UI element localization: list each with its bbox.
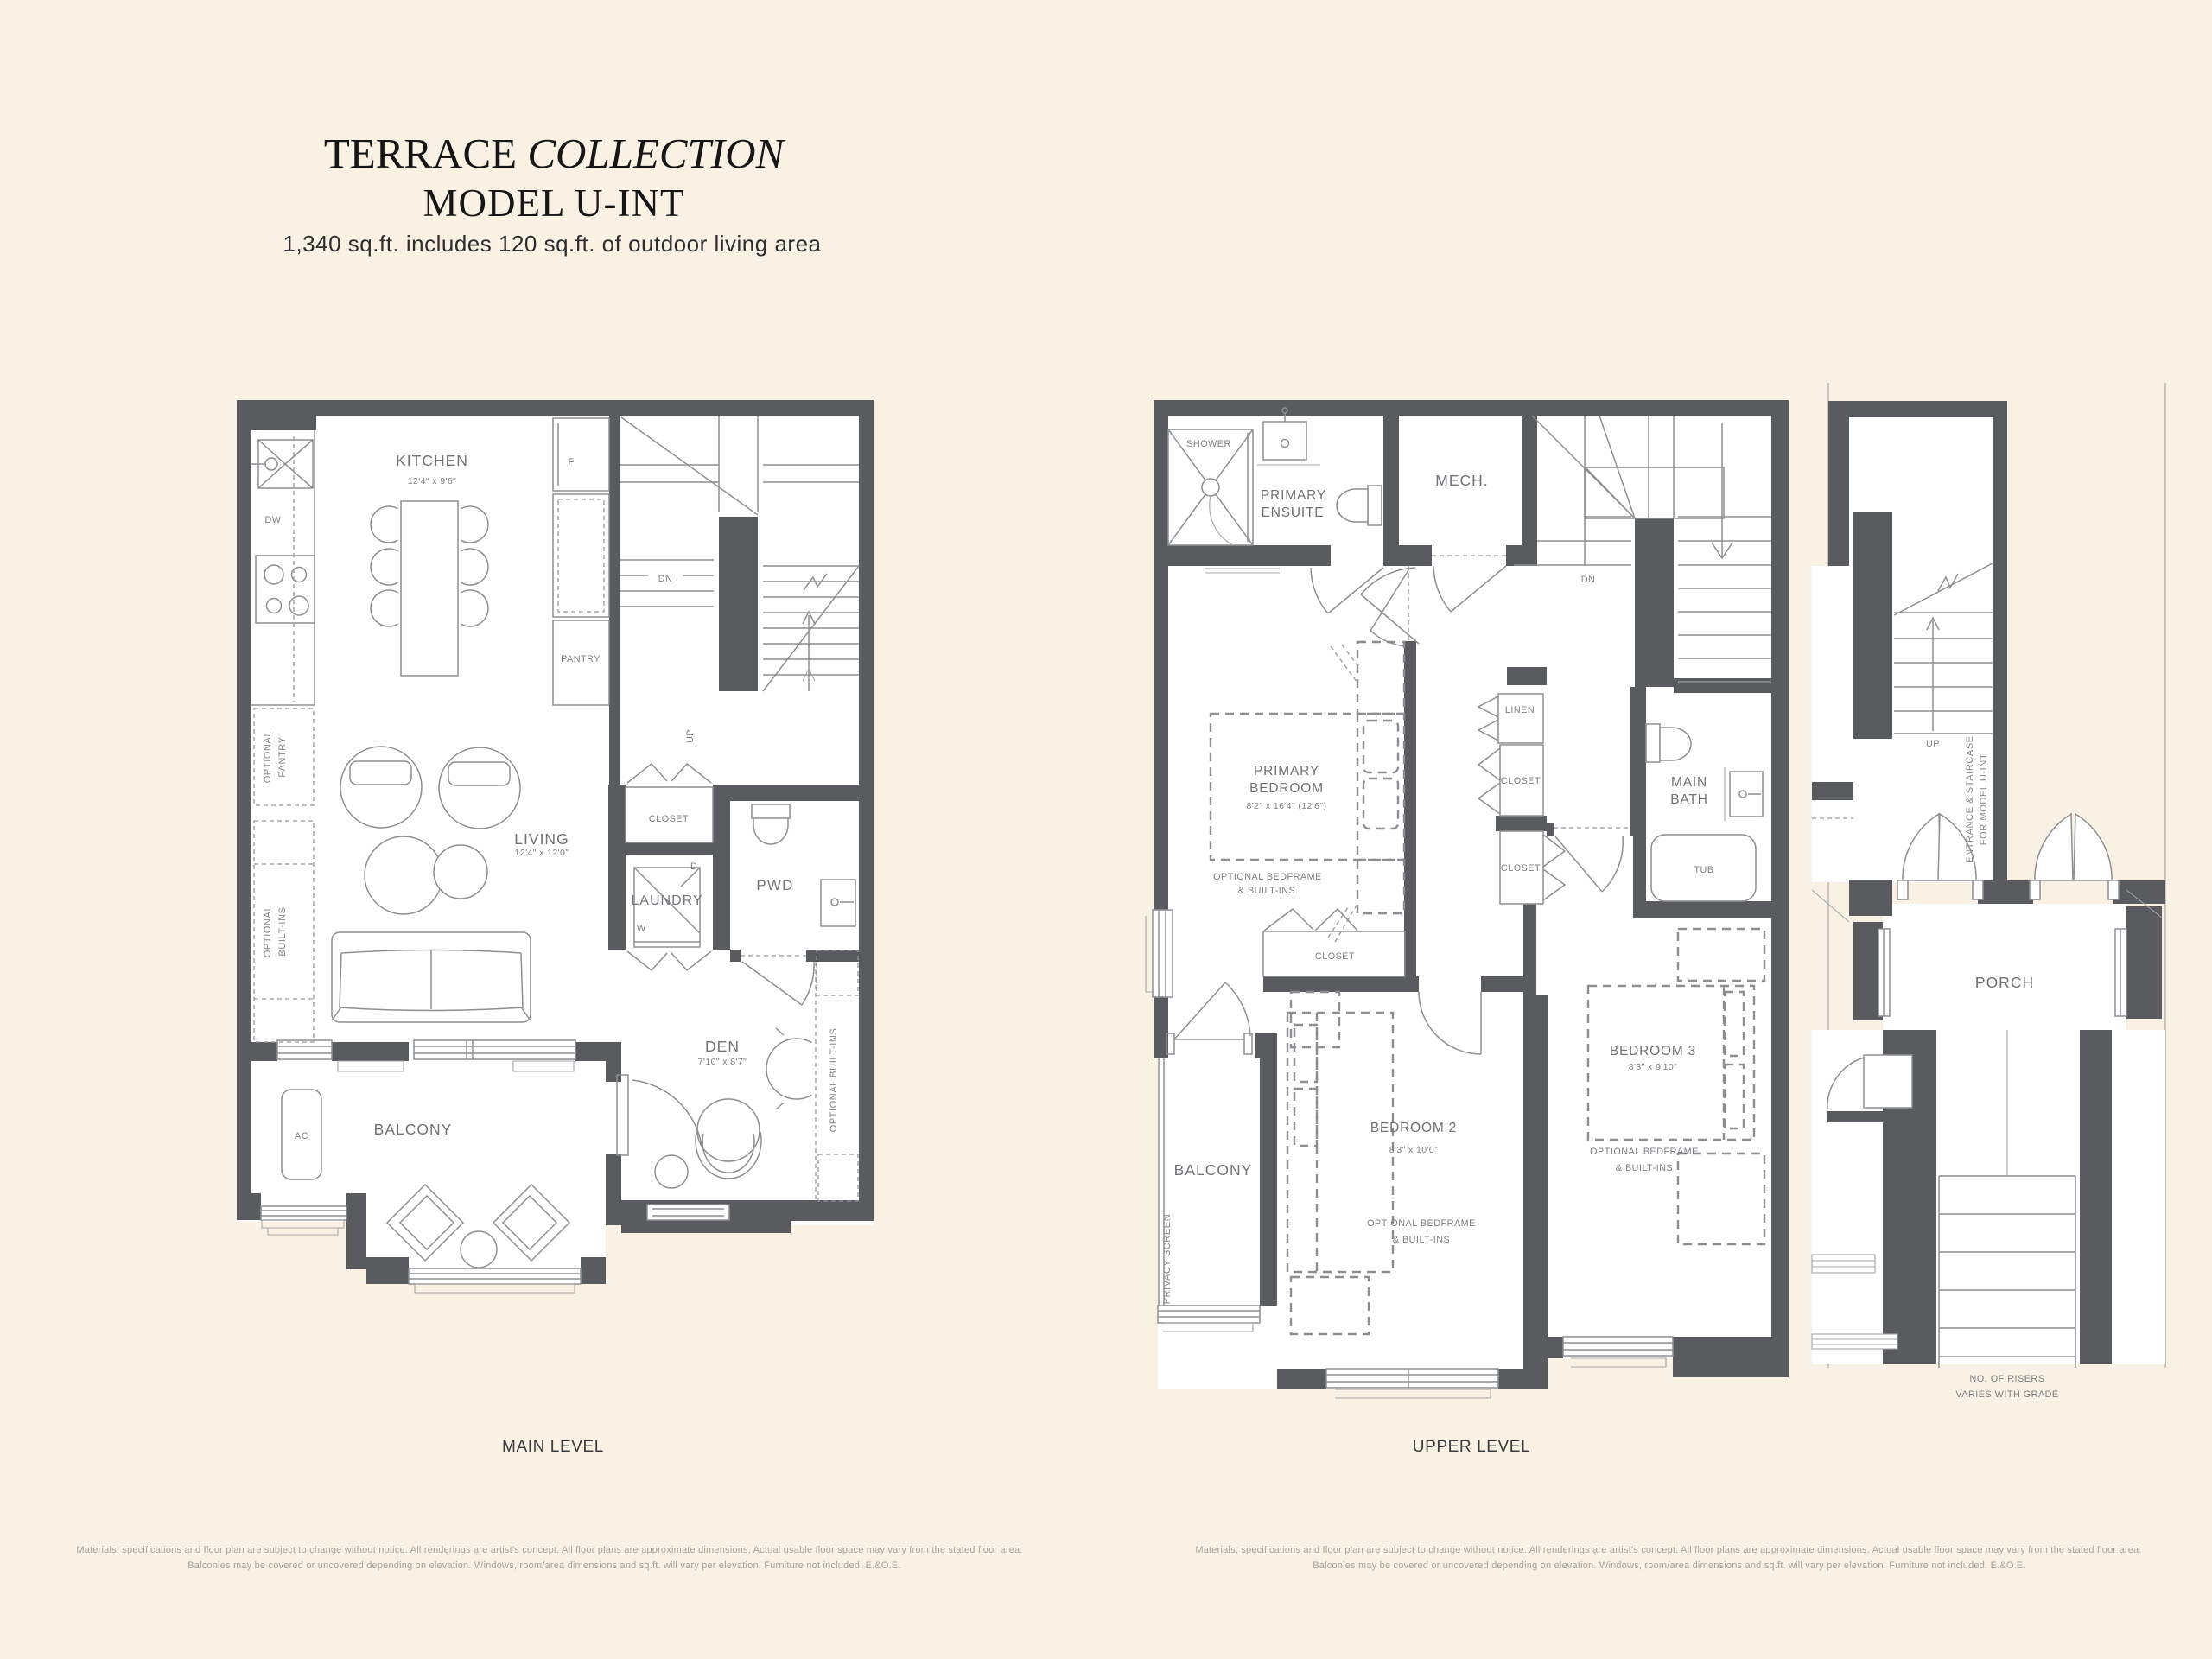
svg-text:DN: DN <box>658 574 673 584</box>
svg-text:OPTIONAL: OPTIONAL <box>263 731 273 783</box>
svg-text:CLOSET: CLOSET <box>649 814 689 824</box>
svg-text:BEDROOM 3: BEDROOM 3 <box>1610 1044 1696 1058</box>
svg-text:Balconies may be covered or un: Balconies may be covered or uncovered de… <box>188 1560 900 1571</box>
svg-text:NO. OF RISERS: NO. OF RISERS <box>1970 1374 2045 1384</box>
svg-text:LINEN: LINEN <box>1505 705 1535 715</box>
svg-text:7'10" x 8'7": 7'10" x 8'7" <box>698 1057 747 1067</box>
svg-text:PWD: PWD <box>756 877 793 893</box>
svg-text:PRIVACY SCREEN: PRIVACY SCREEN <box>1162 1214 1173 1305</box>
svg-text:12'4" x 12'0": 12'4" x 12'0" <box>515 848 569 858</box>
svg-text:DW: DW <box>265 515 282 525</box>
svg-text:ENTRANCE & STAIRCASE: ENTRANCE & STAIRCASE <box>1965 735 1975 863</box>
svg-text:MODEL U-INT: MODEL U-INT <box>423 181 684 225</box>
svg-text:FOR MODEL U-INT: FOR MODEL U-INT <box>1979 753 1989 845</box>
svg-text:ENSUITE: ENSUITE <box>1262 505 1325 520</box>
svg-text:BALCONY: BALCONY <box>374 1121 453 1138</box>
svg-text:CLOSET: CLOSET <box>1501 776 1541 786</box>
svg-text:PORCH: PORCH <box>1975 974 2034 991</box>
svg-text:W: W <box>637 924 646 934</box>
svg-text:& BUILT-INS: & BUILT-INS <box>1393 1235 1451 1245</box>
svg-text:UP: UP <box>685 729 696 743</box>
svg-text:F: F <box>568 457 574 467</box>
svg-text:UPPER LEVEL: UPPER LEVEL <box>1413 1438 1531 1456</box>
svg-text:& BUILT-INS: & BUILT-INS <box>1616 1163 1674 1173</box>
svg-text:PANTRY: PANTRY <box>561 654 601 664</box>
svg-text:BATH: BATH <box>1670 792 1707 807</box>
svg-text:OPTIONAL BUILT-INS: OPTIONAL BUILT-INS <box>829 1028 839 1133</box>
svg-text:AC: AC <box>295 1131 308 1141</box>
svg-text:BALCONY: BALCONY <box>1174 1161 1253 1179</box>
svg-text:DEN: DEN <box>705 1038 740 1055</box>
svg-text:OPTIONAL BEDFRAME: OPTIONAL BEDFRAME <box>1590 1147 1699 1157</box>
svg-text:KITCHEN: KITCHEN <box>396 452 468 469</box>
svg-text:MAIN LEVEL: MAIN LEVEL <box>502 1438 604 1456</box>
svg-text:VARIES WITH GRADE: VARIES WITH GRADE <box>1955 1389 2058 1400</box>
svg-text:8'3" x 9'10": 8'3" x 9'10" <box>1629 1062 1678 1072</box>
svg-text:D: D <box>690 861 697 872</box>
svg-text:DN: DN <box>1581 575 1596 585</box>
svg-text:Materials, specifications and: Materials, specifications and floor plan… <box>1195 1545 2141 1555</box>
svg-text:BUILT-INS: BUILT-INS <box>277 906 288 956</box>
svg-text:PANTRY: PANTRY <box>277 736 288 777</box>
svg-text:BEDROOM: BEDROOM <box>1249 781 1324 796</box>
svg-text:OPTIONAL BEDFRAME: OPTIONAL BEDFRAME <box>1213 872 1322 882</box>
svg-text:OPTIONAL BEDFRAME: OPTIONAL BEDFRAME <box>1367 1218 1476 1229</box>
svg-text:TERRACE COLLECTION: TERRACE COLLECTION <box>324 130 786 177</box>
svg-text:PRIMARY: PRIMARY <box>1254 764 1319 779</box>
svg-text:CLOSET: CLOSET <box>1315 951 1355 962</box>
svg-text:8'2" x 16'4" (12'6"): 8'2" x 16'4" (12'6") <box>1247 801 1327 811</box>
svg-text:MECH.: MECH. <box>1435 472 1488 489</box>
svg-text:1,340 sq.ft. includes 120 sq.f: 1,340 sq.ft. includes 120 sq.ft. of outd… <box>283 231 822 257</box>
svg-text:BEDROOM 2: BEDROOM 2 <box>1370 1121 1457 1135</box>
svg-text:8'3" x 10'0": 8'3" x 10'0" <box>1389 1145 1439 1155</box>
svg-text:Materials, specifications and: Materials, specifications and floor plan… <box>76 1545 1022 1555</box>
svg-text:12'4" x 9'6": 12'4" x 9'6" <box>408 476 457 486</box>
svg-text:TUB: TUB <box>1694 865 1713 875</box>
svg-text:Balconies may be covered or un: Balconies may be covered or uncovered de… <box>1313 1560 2025 1571</box>
svg-text:LIVING: LIVING <box>514 830 569 848</box>
svg-text:SHOWER: SHOWER <box>1186 439 1231 449</box>
svg-text:PRIMARY: PRIMARY <box>1261 488 1326 503</box>
svg-text:OPTIONAL: OPTIONAL <box>263 906 273 957</box>
svg-text:LAUNDRY: LAUNDRY <box>631 893 702 908</box>
svg-text:UP: UP <box>1926 739 1940 749</box>
svg-text:CLOSET: CLOSET <box>1501 863 1541 874</box>
svg-text:& BUILT-INS: & BUILT-INS <box>1238 886 1296 896</box>
svg-text:MAIN: MAIN <box>1671 775 1707 790</box>
